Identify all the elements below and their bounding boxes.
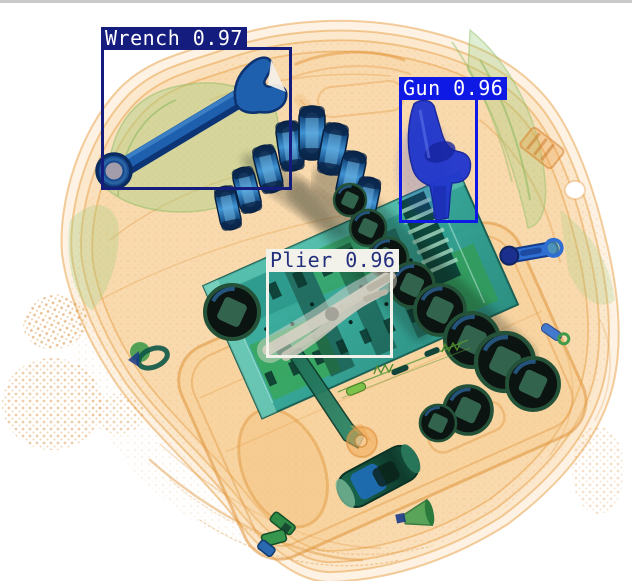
detection-label-gun: Gun 0.96 (399, 77, 507, 100)
detection-label-plier: Plier 0.96 (266, 249, 399, 272)
detection-box-gun: Gun 0.96 (399, 97, 478, 223)
screen-top-edge (0, 0, 632, 3)
detection-label-wrench: Wrench 0.97 (101, 27, 247, 50)
detection-box-wrench: Wrench 0.97 (101, 47, 292, 190)
xray-scan-view: Wrench 0.97 Gun 0.96 Plier 0.96 (0, 0, 632, 581)
detection-box-plier: Plier 0.96 (266, 269, 393, 358)
handle-hole (565, 181, 585, 199)
